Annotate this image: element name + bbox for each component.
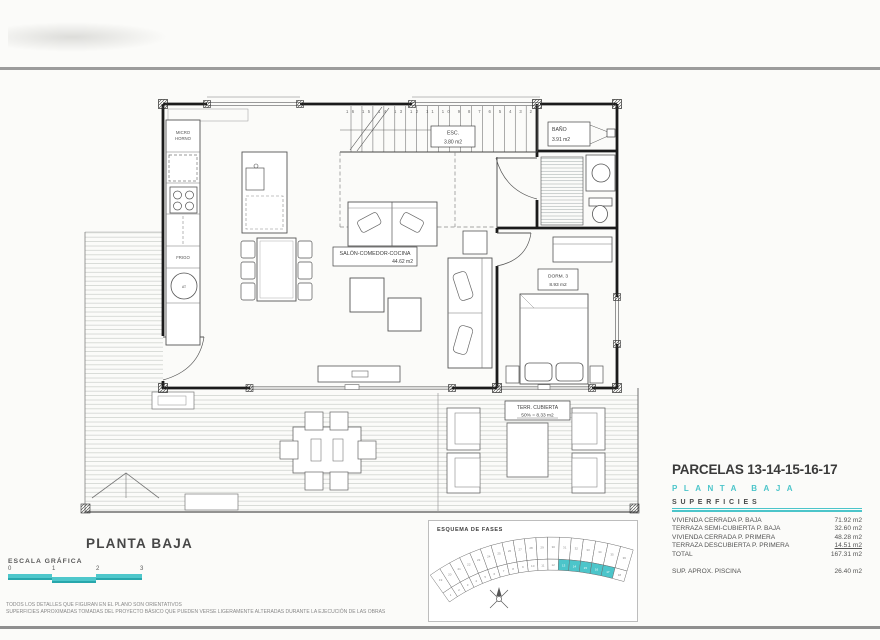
- plan-title: PLANTA BAJA: [86, 536, 193, 551]
- scale-segment: [96, 574, 142, 580]
- table-row: TERRAZA SEMI-CUBIERTA P. BAJA 32.60 m2: [672, 525, 862, 533]
- svg-text:35: 35: [610, 553, 614, 557]
- disclaimer: TODOS LOS DETALLES QUE FIGURAN EN EL PLA…: [6, 602, 385, 616]
- superficie-label: TERRAZA DESCUBIERTA P. PRIMERA: [672, 542, 789, 550]
- superficie-value: 48.28 m2: [835, 534, 863, 542]
- total-value: 167.31 m2: [831, 551, 862, 559]
- table-row-total: TOTAL 167.31 m2: [672, 551, 862, 559]
- floorplan-sheet: { "colors": { "accent": "#4cc5ca", "rule…: [0, 0, 880, 640]
- svg-text:28: 28: [529, 546, 533, 550]
- north-compass: [490, 587, 508, 608]
- disclaimer-line-1: TODOS LOS DETALLES QUE FIGURAN EN EL PLA…: [6, 602, 385, 609]
- table-row-pool: SUP. APROX. PISCINA 26.40 m2: [672, 568, 862, 576]
- svg-text:20: 20: [448, 572, 452, 576]
- scale-tick: 2: [96, 566, 99, 572]
- bathroom-label: BAÑO: [552, 126, 567, 133]
- kitchen-frigo-label: FRIGO: [176, 255, 190, 260]
- pool-value: 26.40 m2: [835, 568, 863, 576]
- scale-segment: [52, 577, 96, 583]
- teal-rule: [672, 508, 862, 512]
- scale-label: ESCALA GRÁFICA: [8, 558, 158, 565]
- kitchen: MICRO HORNO FRIGO AT: [166, 109, 312, 345]
- svg-text:14: 14: [573, 564, 577, 568]
- svg-text:25: 25: [497, 552, 501, 556]
- parcel-title: PARCELAS 13-14-15-16-17: [672, 462, 862, 477]
- table-row: TERRAZA DESCUBIERTA P. PRIMERA 14.51 m2: [672, 542, 862, 550]
- superficie-label: VIVIENDA CERRADA P. PRIMERA: [672, 534, 775, 542]
- stairs-area: 3.80 m2: [444, 140, 462, 146]
- superficie-value: 71.92 m2: [835, 517, 863, 525]
- svg-text:19: 19: [439, 578, 443, 582]
- graphic-scale: ESCALA GRÁFICA 0 1 2 3: [8, 558, 158, 584]
- stair-step-numbers: 16 15 14 13 12 11 10 9 8 7 6 5 4 3 2: [346, 109, 533, 114]
- scale-tick: 1: [52, 566, 55, 572]
- svg-text:12: 12: [551, 563, 555, 567]
- scale-segment: [8, 574, 52, 580]
- svg-text:18: 18: [618, 573, 622, 577]
- phase-scheme-drawing: 1192203214225236247258269271028112912301…: [429, 521, 637, 621]
- svg-text:24: 24: [487, 555, 491, 559]
- living-room: SALÓN-COMEDOR-COCINA 44.62 m2: [163, 202, 492, 382]
- svg-text:32: 32: [575, 547, 579, 551]
- salon-area: 44.62 m2: [392, 259, 413, 265]
- scale-tick: 3: [140, 566, 143, 572]
- scale-ticks: 0 1 2 3: [8, 566, 158, 573]
- total-label: TOTAL: [672, 551, 693, 559]
- floor-subtitle: PLANTA BAJA: [672, 484, 862, 493]
- superficies-heading: SUPERFICIES: [672, 499, 862, 506]
- terraza-area: 50% = 8.33 m2: [521, 413, 554, 419]
- svg-text:34: 34: [598, 550, 602, 554]
- superficies-table: VIVIENDA CERRADA P. BAJA 71.92 m2 TERRAZ…: [672, 517, 862, 576]
- svg-text:11: 11: [541, 563, 544, 567]
- dorm3-area: 8.93 m2: [549, 282, 567, 288]
- scale-tick: 0: [8, 566, 11, 572]
- svg-text:31: 31: [563, 546, 567, 550]
- kitchen-micro-label-2: HORNO: [175, 136, 192, 141]
- stairs-label: ESC.: [447, 131, 459, 137]
- svg-text:29: 29: [540, 545, 544, 549]
- svg-text:26: 26: [508, 549, 512, 553]
- superficie-value: 14.51 m2: [835, 542, 863, 550]
- salon-label: SALÓN-COMEDOR-COCINA: [340, 250, 411, 257]
- scale-bar: [8, 574, 158, 584]
- svg-text:27: 27: [519, 547, 523, 551]
- svg-text:13: 13: [562, 564, 566, 568]
- svg-text:21: 21: [458, 567, 462, 571]
- bathroom: BAÑO 3.91 m2: [496, 122, 615, 225]
- kitchen-micro-label-1: MICRO: [176, 130, 191, 135]
- svg-text:16: 16: [595, 568, 599, 572]
- svg-text:22: 22: [467, 562, 471, 566]
- svg-text:17: 17: [606, 570, 610, 574]
- svg-text:23: 23: [477, 558, 481, 562]
- table-row: VIVIENDA CERRADA P. BAJA 71.92 m2: [672, 517, 862, 525]
- superficie-label: TERRAZA SEMI-CUBIERTA P. BAJA: [672, 525, 780, 533]
- svg-text:33: 33: [586, 548, 590, 552]
- info-panel: PARCELAS 13-14-15-16-17 PLANTA BAJA SUPE…: [672, 462, 862, 576]
- svg-text:36: 36: [623, 556, 627, 560]
- table-row: VIVIENDA CERRADA P. PRIMERA 48.28 m2: [672, 534, 862, 542]
- superficie-value: 32.60 m2: [835, 525, 863, 533]
- bedroom-dorm3: DORM. 3 8.93 m2: [497, 233, 612, 384]
- disclaimer-line-2: SUPERFICIES APROXIMADAS TOMADAS DEL PROY…: [6, 609, 385, 616]
- pool-label: SUP. APROX. PISCINA: [672, 568, 741, 576]
- bathroom-area: 3.91 m2: [552, 137, 570, 143]
- svg-text:30: 30: [552, 545, 556, 549]
- dorm3-label: DORM. 3: [548, 274, 568, 280]
- phase-scheme-box: ESQUEMA DE FASES 11922032142252362472582…: [428, 520, 638, 622]
- svg-text:15: 15: [584, 566, 588, 570]
- kitchen-at-label: AT: [182, 285, 186, 289]
- svg-text:10: 10: [531, 564, 535, 568]
- superficie-label: VIVIENDA CERRADA P. BAJA: [672, 517, 762, 525]
- terraza-label: TERR. CUBIERTA: [517, 405, 559, 411]
